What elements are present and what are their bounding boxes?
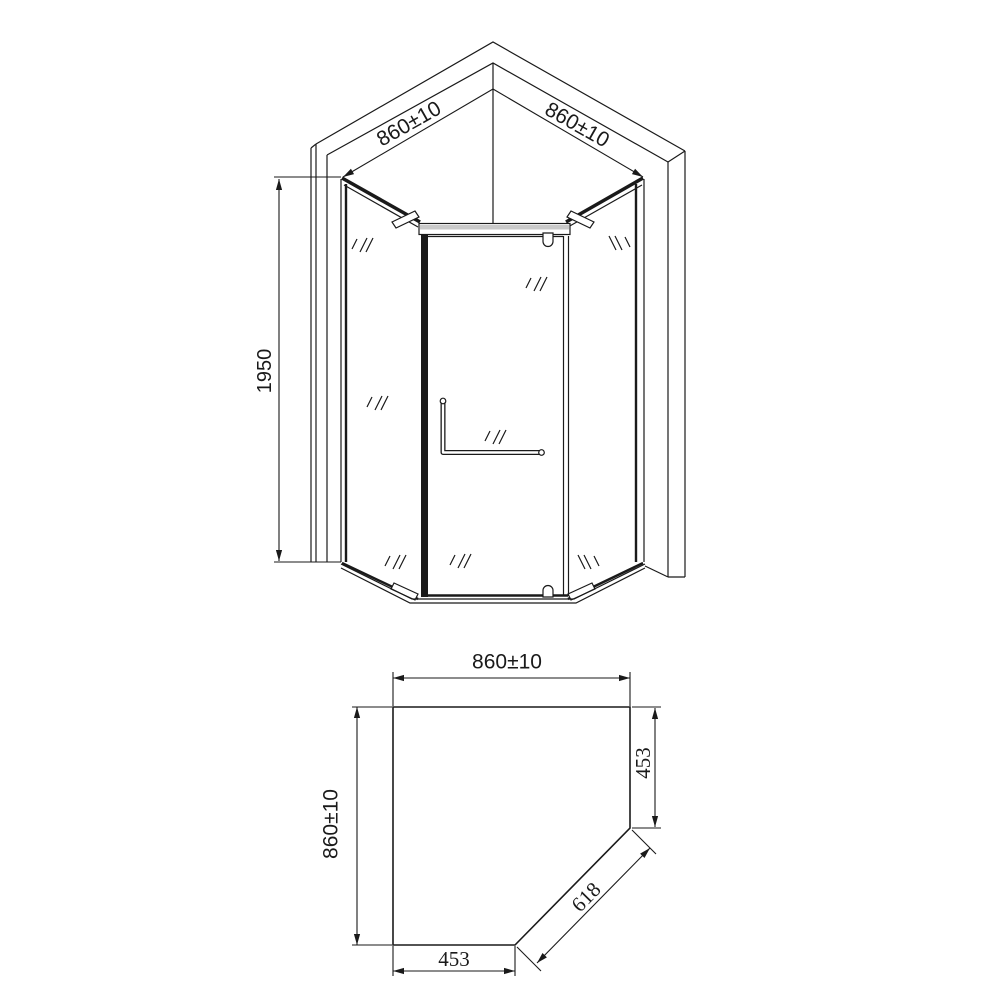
handle-end-cap (440, 398, 446, 404)
dimension-label: 860±10 (320, 789, 343, 859)
dimension-height: 1950 (254, 177, 341, 562)
handle-end-cap (539, 450, 545, 456)
plan-view: 860±10 860±10 453 618 453 (320, 651, 662, 977)
floor-edge (645, 566, 668, 577)
shower-tray-outline (393, 707, 630, 945)
plan-extension-lines (352, 672, 661, 976)
technical-drawing-canvas: 860±10 860±10 1950 (0, 0, 1000, 1000)
glass-reflection-icon (385, 555, 406, 569)
glass-enclosure (341, 178, 645, 603)
right-glass-panel (566, 178, 644, 599)
dimension-label: 453 (438, 947, 470, 971)
door-hinge-stile (421, 234, 428, 597)
dimension-label: 860±10 (472, 651, 542, 674)
glass-reflection-icon (367, 396, 388, 410)
wall-outer-top-edge (316, 42, 685, 151)
dimension-label: 1950 (254, 349, 276, 394)
glass-reflection-icon (352, 238, 373, 252)
dimension-label: 860±10 (541, 98, 613, 152)
glass-reflection-icon (526, 277, 547, 291)
dimension-plan-bottom: 453 (393, 947, 515, 971)
dimension-label: 618 (566, 877, 605, 916)
roller-tab-bottom (543, 586, 553, 598)
door-handle (440, 398, 544, 455)
glass-reflection-icon (485, 430, 506, 444)
glass-reflection-icon (578, 555, 599, 569)
right-wall (645, 151, 685, 577)
roller-tab-top (543, 233, 553, 247)
wall-bracket-bottom-right (568, 583, 595, 600)
dimension-wall-right: 860±10 (493, 89, 643, 177)
wall-bracket-bottom-left (391, 583, 418, 600)
left-wall (311, 144, 327, 562)
dimension-label: 453 (631, 747, 655, 779)
corner-walls (311, 42, 685, 577)
glass-reflection-icon (450, 554, 471, 568)
left-glass-panel (341, 178, 420, 599)
shower-enclosure-drawing: 860±10 860±10 1950 (0, 0, 1000, 1000)
glass-reflection-icon (609, 236, 630, 250)
dimension-plan-top: 860±10 (393, 651, 630, 679)
elevation-view: 860±10 860±10 1950 (254, 42, 685, 603)
dimension-plan-left: 860±10 (320, 707, 358, 945)
dimension-plan-right: 453 (631, 708, 655, 827)
glass-reflection-icons (352, 236, 630, 569)
